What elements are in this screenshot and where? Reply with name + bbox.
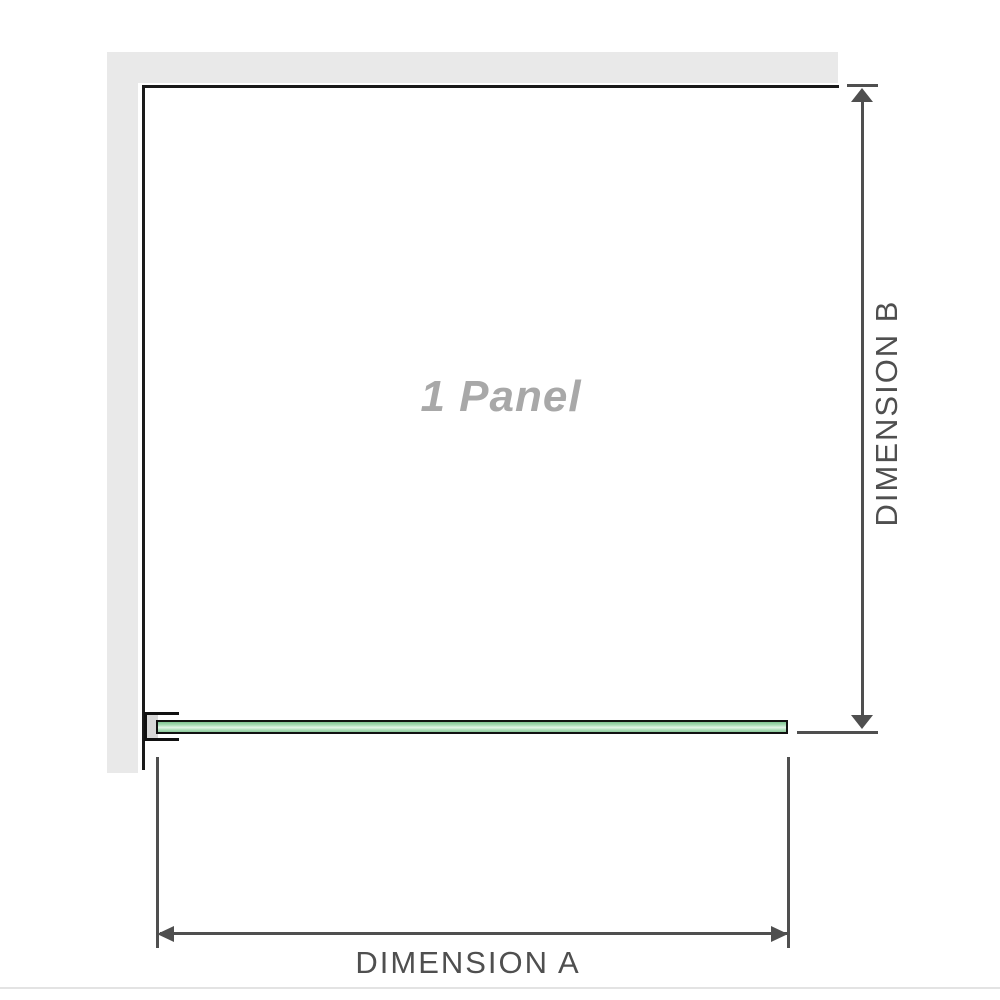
panel-outline-left — [142, 85, 145, 770]
wall-left — [107, 52, 138, 773]
panel-count-label: 1 Panel — [420, 372, 581, 422]
dimension-a-label: DIMENSION A — [355, 945, 580, 981]
panel-outline-top — [142, 85, 839, 88]
dimension-b-line — [861, 95, 864, 723]
dimension-a-right-extension — [787, 757, 790, 948]
dimension-b-bottom-tick — [797, 731, 878, 734]
arrow-right-icon — [771, 926, 788, 942]
dimension-b-top-tick — [847, 84, 878, 87]
wall-top — [107, 52, 838, 83]
glass-panel — [156, 720, 788, 734]
arrow-left-icon — [157, 926, 174, 942]
dimension-b-label: DIMENSION B — [869, 300, 905, 527]
arrow-down-icon — [851, 715, 873, 729]
arrow-up-icon — [851, 88, 873, 102]
shower-panel-dimension-diagram: 1 Panel DIMENSION B DIMENSION A — [0, 0, 1000, 1000]
dimension-a-line — [160, 932, 787, 935]
dimension-a-left-extension — [156, 757, 159, 948]
bottom-divider — [0, 987, 1000, 989]
